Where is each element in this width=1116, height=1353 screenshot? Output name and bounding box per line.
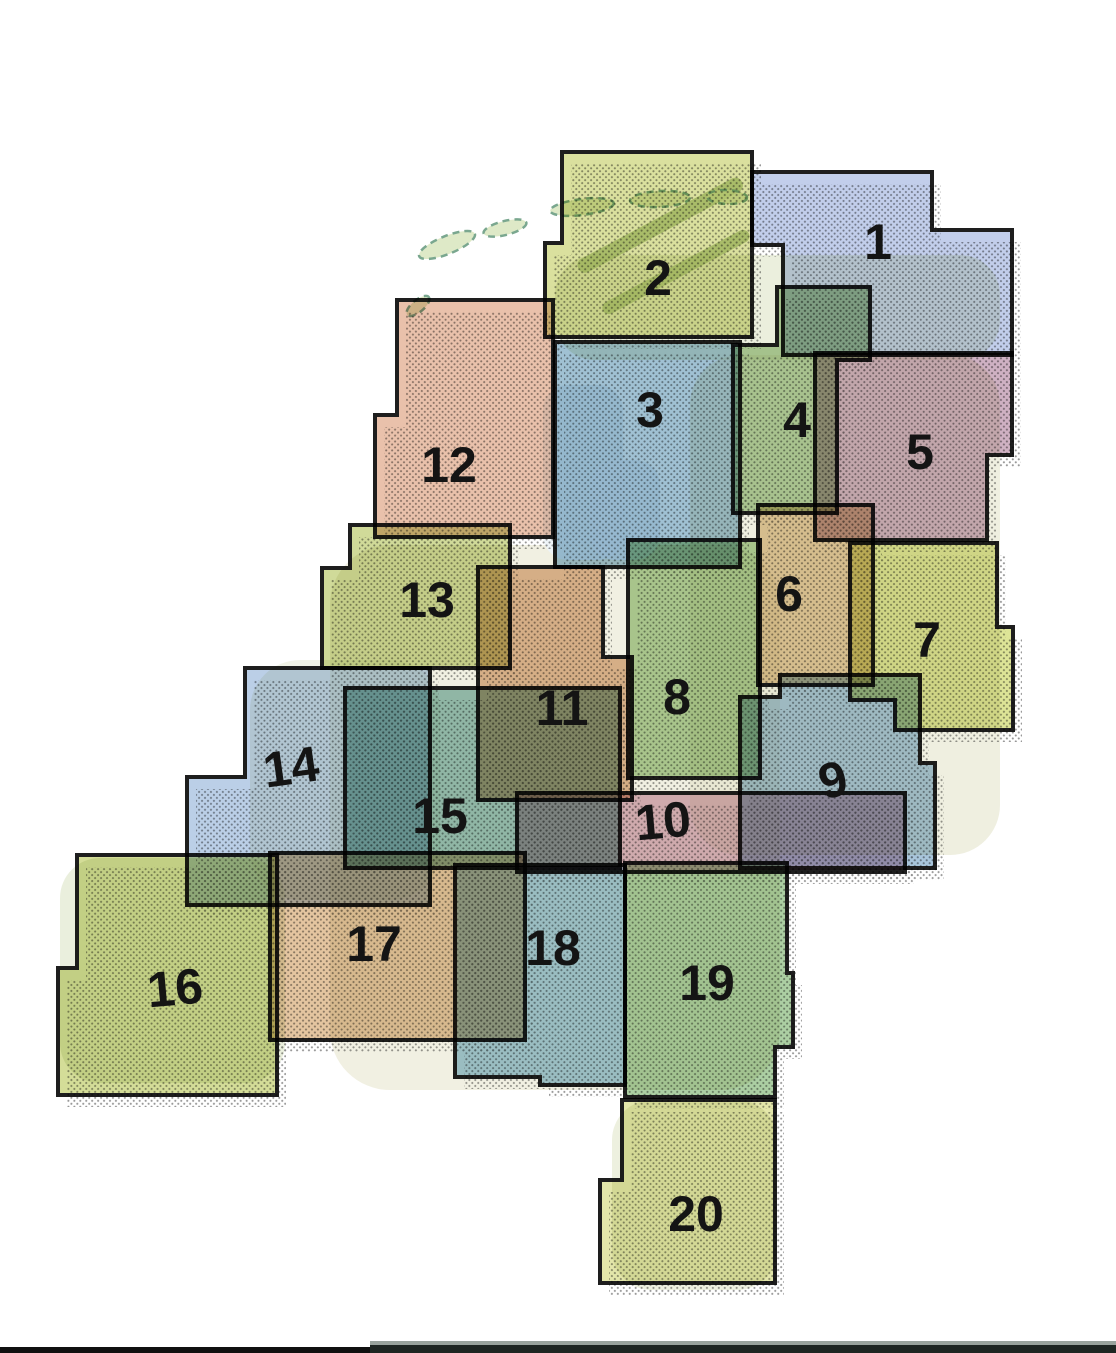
map-sheet-1-label: 1 bbox=[864, 214, 892, 270]
map-sheet-2-area bbox=[545, 152, 752, 337]
map-sheet-3-area bbox=[555, 342, 740, 567]
map-sheet-16-label: 16 bbox=[145, 958, 205, 1019]
map-sheet-13-label: 13 bbox=[399, 572, 455, 628]
map-sheet-8-label: 8 bbox=[663, 669, 691, 725]
map-sheet-15-label: 15 bbox=[412, 788, 468, 844]
map-sheet-12-area bbox=[375, 300, 553, 537]
map-sheet-5-label: 5 bbox=[906, 424, 934, 480]
map-sheet-14-label: 14 bbox=[260, 735, 323, 798]
scan-edge-bar bbox=[370, 1341, 1116, 1345]
map-sheet-20-label: 20 bbox=[668, 1186, 724, 1242]
map-sheet-10-label: 10 bbox=[633, 791, 693, 852]
map-sheet-2-label: 2 bbox=[644, 250, 672, 306]
map-sheet-17-label: 17 bbox=[346, 916, 402, 972]
map-sheet-18-label: 18 bbox=[525, 920, 581, 976]
map-sheet-4-label: 4 bbox=[783, 392, 811, 448]
netherlands-sheet-index-map: 1234567891011121314151617181920 bbox=[0, 0, 1116, 1353]
map-sheet-19-label: 19 bbox=[679, 955, 735, 1011]
map-sheet-6-label: 6 bbox=[775, 566, 803, 622]
scanned-map-sheet-index: 1234567891011121314151617181920 bbox=[0, 0, 1116, 1353]
map-sheet-7-label: 7 bbox=[913, 612, 941, 668]
map-sheet-3-label: 3 bbox=[636, 382, 664, 438]
map-sheet-11-label: 11 bbox=[536, 680, 589, 736]
map-sheet-12-label: 12 bbox=[421, 437, 477, 493]
